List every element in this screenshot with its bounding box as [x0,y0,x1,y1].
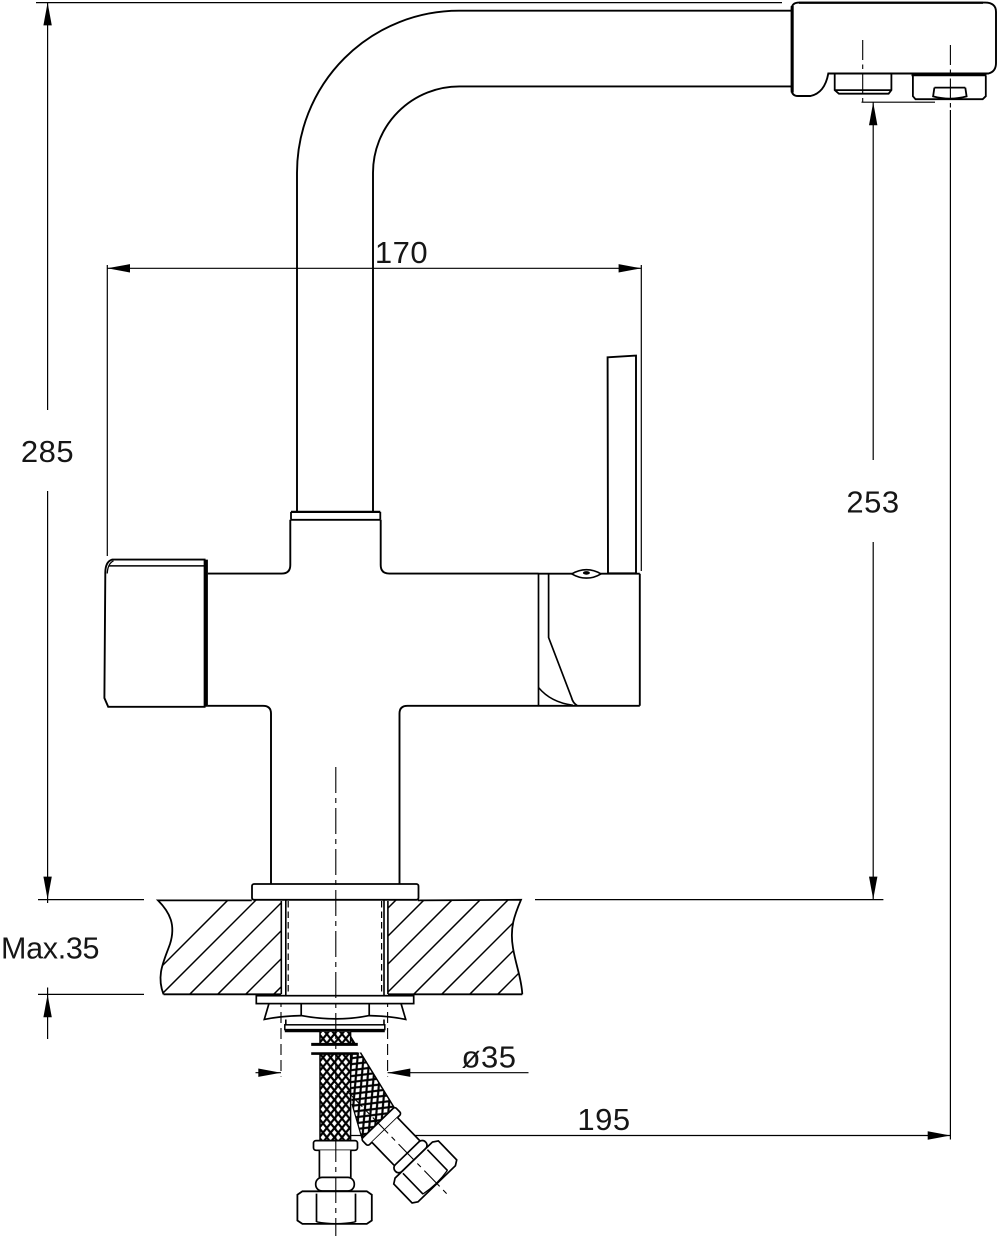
svg-text:285: 285 [21,434,74,469]
svg-text:170: 170 [375,235,428,270]
svg-text:253: 253 [846,485,899,520]
svg-text:Max.35: Max.35 [1,932,99,966]
svg-text:ø35: ø35 [462,1040,517,1075]
svg-text:195: 195 [577,1102,630,1137]
